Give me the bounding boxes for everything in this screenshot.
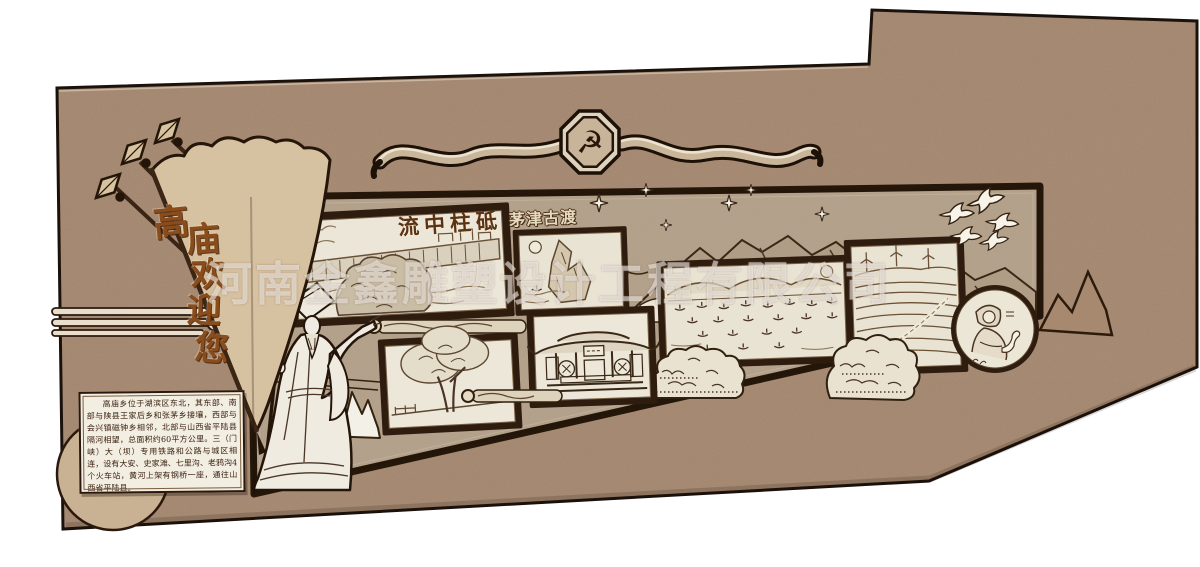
portrait-medallion <box>951 285 1039 373</box>
ferry-picture-label: 茅津古渡 <box>508 203 577 231</box>
flag-char-5: 您 <box>193 320 230 371</box>
party-emblem: ☭ <box>561 111 619 173</box>
info-panel: 高庙乡位于湖滨区东北，其东部、南部与陕县王家后乡和张茅乡接壤，西部与会兴镇磁钟乡… <box>78 390 245 494</box>
info-text: 高庙乡位于湖滨区东北，其东部、南部与陕县王家后乡和张茅乡接壤，西部与会兴镇磁钟乡… <box>87 397 238 495</box>
tree-picture <box>377 322 522 435</box>
cultural-wall-design: ☭ 高 庙 欢 迎 您 流中柱砥 茅津古渡 高庙乡位于湖滨区东北，其东部、南部与… <box>0 0 1200 567</box>
hammer-sickle-icon: ☭ <box>576 125 604 161</box>
cloud-scroll-lower <box>462 390 562 402</box>
ferry-picture <box>513 226 630 316</box>
